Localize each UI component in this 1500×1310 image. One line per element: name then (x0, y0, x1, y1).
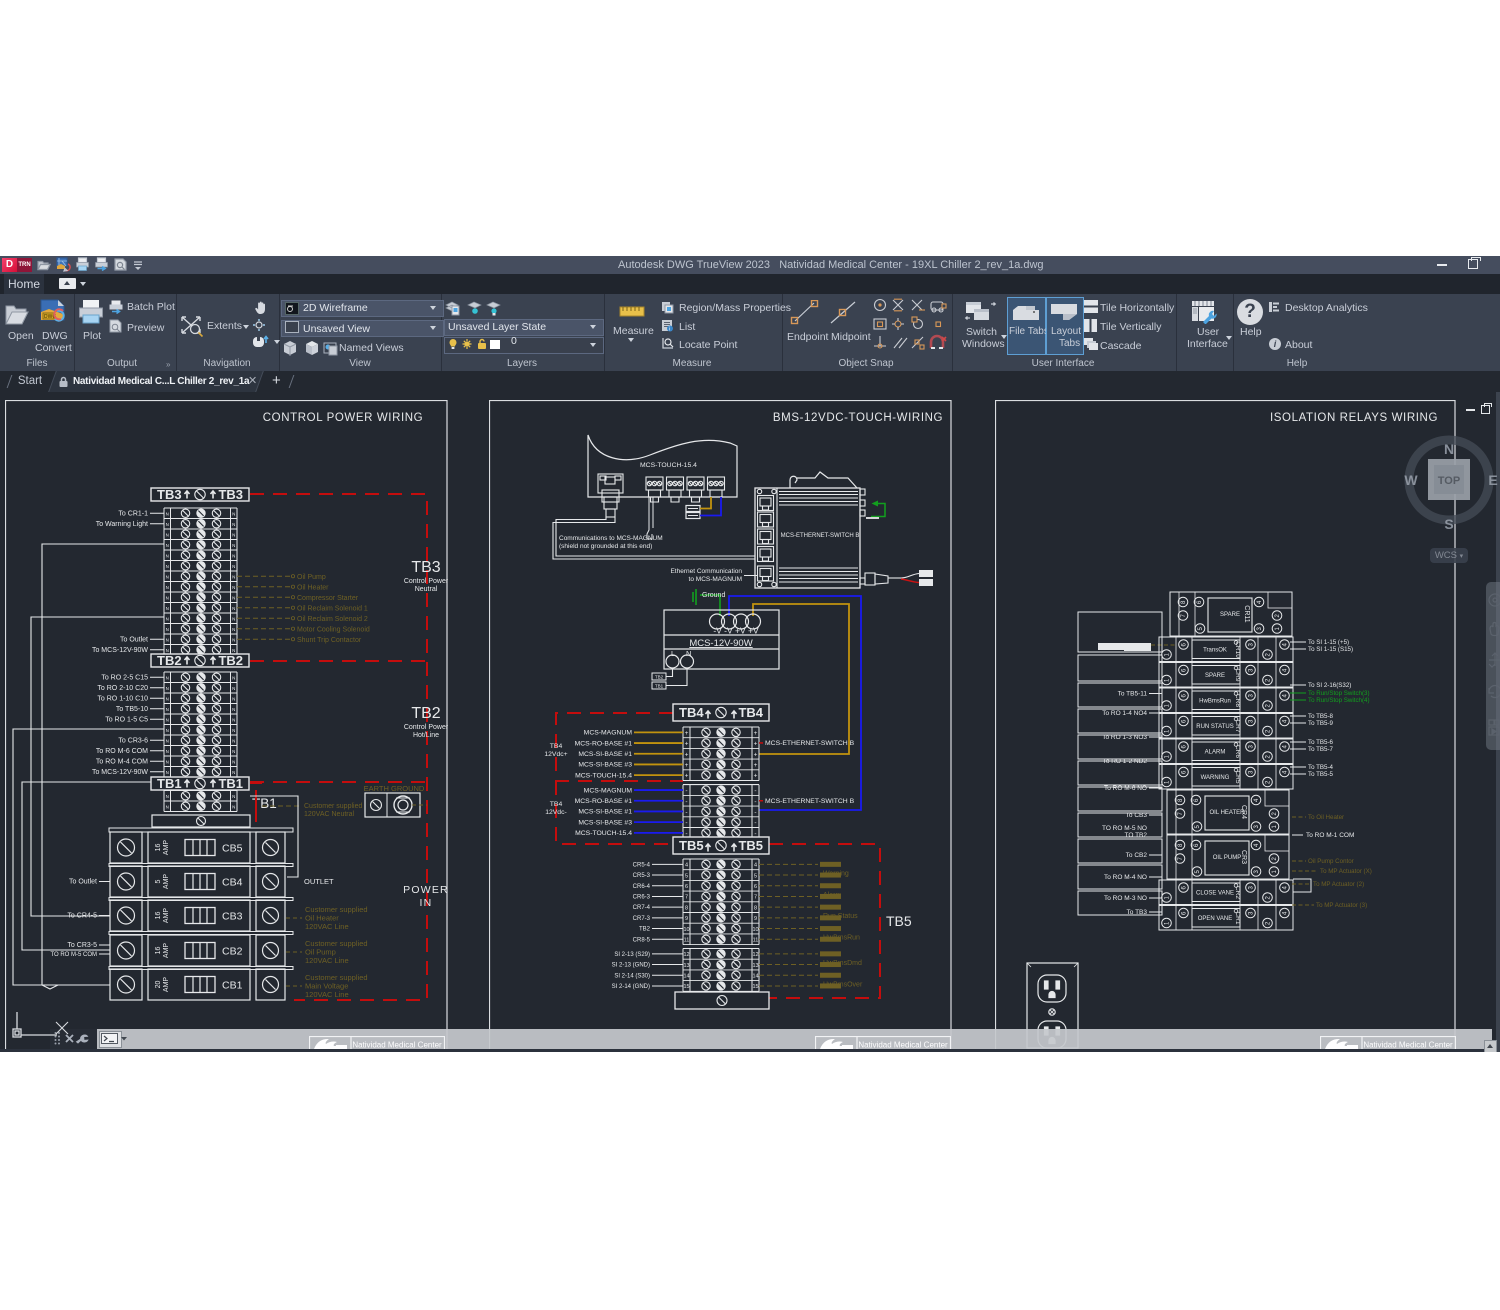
svg-text:-: - (754, 809, 756, 816)
svg-text:7: 7 (1178, 811, 1184, 815)
svg-text:4: 4 (1283, 719, 1289, 723)
svg-text:5: 5 (685, 873, 688, 879)
svg-text:TB1: TB1 (218, 776, 243, 791)
svg-text:N: N (232, 564, 235, 569)
svg-text:2: 2 (1266, 895, 1272, 899)
svg-text:6: 6 (1182, 885, 1188, 889)
svg-text:N: N (166, 522, 169, 527)
svg-text:6: 6 (1182, 642, 1188, 646)
svg-text:-V -V +V +V: -V -V +V +V (713, 626, 759, 636)
svg-text:8: 8 (685, 905, 688, 911)
svg-text:CR9: CR9 (1234, 668, 1241, 681)
svg-text:To RO 1-5 C5: To RO 1-5 C5 (105, 716, 148, 723)
svg-text:To SI 2-16(S32): To SI 2-16(S32) (1308, 682, 1351, 689)
svg-text:N: N (166, 627, 169, 632)
svg-text:4: 4 (754, 863, 757, 869)
svg-text:3: 3 (1257, 626, 1263, 630)
svg-text:N: N (232, 686, 235, 691)
svg-text:Motor Cooling Solenoid: Motor Cooling Solenoid (297, 626, 370, 633)
svg-text:N: N (232, 595, 235, 600)
svg-text:CB5: CB5 (222, 843, 243, 855)
svg-text:N: N (232, 770, 235, 775)
svg-text:Compressor Starter: Compressor Starter (297, 595, 359, 602)
svg-text:8: 8 (1181, 600, 1187, 604)
svg-text:3: 3 (1249, 693, 1255, 697)
svg-text:N: N (166, 749, 169, 754)
svg-text:3: 3 (1254, 869, 1260, 873)
svg-text:OIL HEATER: OIL HEATER (1209, 810, 1245, 816)
svg-text:6: 6 (1182, 770, 1188, 774)
svg-text:Control Power: Control Power (404, 724, 448, 731)
svg-text:HwBmsRun: HwBmsRun (1199, 699, 1231, 705)
svg-text:-: - (685, 788, 687, 795)
svg-text:N: N (232, 543, 235, 548)
svg-text:MCS-TOUCH-15.4: MCS-TOUCH-15.4 (640, 462, 697, 469)
svg-text:To TB5-4: To TB5-4 (1308, 764, 1334, 771)
svg-text:1: 1 (1165, 921, 1171, 925)
svg-text:N: N (232, 585, 235, 590)
svg-text:CB3: CB3 (222, 911, 243, 923)
svg-text:5: 5 (1195, 824, 1201, 828)
svg-text:12: 12 (683, 952, 689, 958)
svg-text:TO RO M-5 COM: TO RO M-5 COM (50, 952, 97, 958)
svg-text:N: N (166, 585, 169, 590)
svg-text:N: N (166, 770, 169, 775)
svg-text:To Warning Light: To Warning Light (96, 521, 148, 528)
svg-text:AMP: AMP (163, 908, 170, 924)
svg-text:OUTLET: OUTLET (304, 877, 334, 886)
svg-text:To RO M-6 NO: To RO M-6 NO (1104, 785, 1147, 792)
svg-text:N: N (232, 759, 235, 764)
svg-text:N: N (166, 574, 169, 579)
svg-text:+: + (685, 751, 689, 758)
svg-text:Ground: Ground (702, 592, 725, 599)
svg-text:TB4: TB4 (738, 705, 763, 720)
svg-text:To RO M-3 NO: To RO M-3 NO (1104, 895, 1147, 902)
svg-text:To TB3: To TB3 (1127, 909, 1148, 916)
svg-text:TransOK: TransOK (1203, 648, 1227, 654)
svg-text:SPARE: SPARE (1205, 673, 1225, 679)
svg-text:MCS-12V-90W: MCS-12V-90W (689, 638, 752, 649)
svg-text:To CB2: To CB2 (1126, 852, 1148, 859)
svg-text:MCS-ETHERNET-SWITCH B: MCS-ETHERNET-SWITCH B (765, 740, 855, 747)
svg-text:9: 9 (685, 916, 688, 922)
svg-text:TB4: TB4 (550, 743, 563, 750)
svg-text:N: N (232, 532, 235, 537)
svg-text:1: 1 (1165, 754, 1171, 758)
svg-text:N: N (232, 717, 235, 722)
svg-text:CR5-3: CR5-3 (633, 873, 651, 879)
svg-text:OIL PUMP: OIL PUMP (1213, 855, 1241, 861)
svg-text:To MCS-12V-90W: To MCS-12V-90W (92, 769, 148, 776)
svg-text:MCS-ETHERNET-SWITCH B: MCS-ETHERNET-SWITCH B (781, 533, 860, 539)
svg-text:13: 13 (752, 963, 758, 969)
svg-text:To Run/Stop Switch(3): To Run/Stop Switch(3) (1308, 690, 1370, 697)
svg-text:Oil Reclaim Solenoid 1: Oil Reclaim Solenoid 1 (297, 605, 368, 612)
svg-text:7: 7 (685, 895, 688, 901)
svg-text:AMP: AMP (163, 874, 170, 890)
svg-text:MCS-SI-BASE #3: MCS-SI-BASE #3 (578, 819, 632, 826)
svg-text:TB5: TB5 (738, 838, 763, 853)
svg-text:TB3: TB3 (218, 487, 243, 502)
svg-text:5: 5 (155, 879, 162, 883)
svg-text:1: 1 (1165, 652, 1171, 656)
svg-text:To MP Actuator (2): To MP Actuator (2) (1313, 881, 1364, 888)
svg-text:N: N (166, 616, 169, 621)
svg-text:+: + (685, 730, 689, 737)
svg-text:CR8: CR8 (1234, 694, 1241, 707)
svg-text:3: 3 (1254, 824, 1260, 828)
svg-text:N: N (166, 543, 169, 548)
svg-text:+: + (685, 773, 689, 780)
svg-text:+: + (754, 741, 758, 748)
svg-text:N: N (232, 522, 235, 527)
svg-text:4: 4 (1283, 668, 1289, 672)
svg-text:Neutral: Neutral (415, 586, 438, 593)
svg-text:-: - (685, 798, 687, 805)
svg-text:-: - (754, 830, 756, 837)
svg-text:TO RO M-5 NO: TO RO M-5 NO (1102, 825, 1147, 832)
svg-text:MCS-MAGNUM: MCS-MAGNUM (584, 730, 633, 737)
svg-text:To TB5-7: To TB5-7 (1308, 746, 1334, 753)
svg-text:MCS-RO-BASE #1: MCS-RO-BASE #1 (575, 798, 633, 805)
svg-text:1: 1 (1165, 895, 1171, 899)
svg-text:TB4: TB4 (550, 801, 563, 808)
svg-text:1: 1 (1165, 703, 1171, 707)
svg-text:To CR3-5: To CR3-5 (67, 942, 97, 949)
svg-text:AMP: AMP (163, 943, 170, 959)
svg-text:6: 6 (685, 884, 688, 890)
svg-text:N: N (1444, 441, 1454, 457)
svg-text:TB5: TB5 (679, 838, 704, 853)
svg-text:TB1: TB1 (157, 776, 182, 791)
svg-text:15: 15 (683, 984, 689, 990)
svg-text:W: W (1404, 472, 1418, 488)
svg-text:N: N (166, 759, 169, 764)
svg-text:4: 4 (1254, 843, 1260, 847)
svg-text:6: 6 (1194, 843, 1200, 847)
svg-text:N: N (166, 675, 169, 680)
svg-text:CR5: CR5 (1234, 770, 1241, 783)
svg-text:CB2: CB2 (222, 946, 243, 958)
svg-text:MCS-TOUCH-15.4: MCS-TOUCH-15.4 (575, 772, 632, 779)
svg-text:MCS-ETHERNET-SWITCH B: MCS-ETHERNET-SWITCH B (765, 798, 855, 805)
svg-text:To SI 1-15 (+5): To SI 1-15 (+5) (1308, 639, 1349, 646)
svg-text:N: N (166, 511, 169, 516)
svg-text:To TB5-11: To TB5-11 (1118, 691, 1148, 698)
svg-text:SI 2-13 (S29): SI 2-13 (S29) (614, 952, 650, 958)
svg-text:CR7-3: CR7-3 (633, 916, 651, 922)
svg-text:Shunt Trip Contactor: Shunt Trip Contactor (297, 637, 362, 644)
svg-text:CR6: CR6 (1234, 745, 1241, 758)
svg-text:To Run/Stop Switch(4): To Run/Stop Switch(4) (1308, 697, 1370, 704)
svg-text:12: 12 (752, 952, 758, 958)
svg-text:To Oil Heater: To Oil Heater (1308, 814, 1344, 821)
svg-text:AMP: AMP (163, 840, 170, 856)
svg-text:MCS-MAGNUM: MCS-MAGNUM (584, 787, 633, 794)
svg-text:-: - (754, 798, 756, 805)
svg-text:6: 6 (1182, 719, 1188, 723)
svg-text:L: L (671, 649, 675, 658)
svg-text:8: 8 (1178, 843, 1184, 847)
svg-text:Oil Pump: Oil Pump (297, 574, 326, 581)
svg-text:CR1: CR1 (1234, 911, 1241, 924)
svg-text:To RO M-4 NO: To RO M-4 NO (1104, 874, 1147, 881)
svg-text:+: + (754, 730, 758, 737)
svg-text:POWER: POWER (403, 884, 448, 896)
svg-text:To CB3: To CB3 (1126, 812, 1148, 819)
svg-text:16: 16 (155, 912, 162, 920)
svg-text:To TB5-5: To TB5-5 (1308, 771, 1334, 778)
svg-text:3: 3 (1249, 885, 1255, 889)
svg-text:TB1: TB1 (655, 684, 664, 689)
svg-text:To TB5-6: To TB5-6 (1308, 739, 1334, 746)
svg-text:20: 20 (155, 981, 162, 989)
svg-text:MCS-SI-BASE #3: MCS-SI-BASE #3 (578, 762, 632, 769)
svg-text:6: 6 (1194, 798, 1200, 802)
svg-text:To RO 2-5 C15: To RO 2-5 C15 (101, 674, 148, 681)
svg-text:N: N (232, 738, 235, 743)
svg-text:2: 2 (1272, 856, 1278, 860)
svg-text:16: 16 (155, 947, 162, 955)
svg-text:OPEN VANE: OPEN VANE (1198, 916, 1233, 922)
svg-text:16: 16 (155, 844, 162, 852)
svg-text:To Outlet: To Outlet (69, 879, 97, 886)
svg-text:To TB5-9: To TB5-9 (1308, 720, 1334, 727)
svg-text:CR11: CR11 (1243, 605, 1250, 622)
svg-text:TOP: TOP (1438, 475, 1460, 487)
svg-text:MCS-SI-BASE #1: MCS-SI-BASE #1 (578, 751, 632, 758)
svg-text:5: 5 (1198, 626, 1204, 630)
svg-text:1: 1 (1272, 869, 1278, 873)
svg-text:MCS-SI-BASE #1: MCS-SI-BASE #1 (578, 809, 632, 816)
svg-text:Hot/Line: Hot/Line (413, 732, 439, 739)
svg-text:N: N (166, 804, 169, 809)
svg-text:To Outlet: To Outlet (120, 636, 148, 643)
svg-text:1: 1 (1165, 780, 1171, 784)
svg-text:7: 7 (1178, 856, 1184, 860)
svg-text:4: 4 (1257, 600, 1263, 604)
svg-text:2: 2 (1275, 613, 1281, 617)
svg-text:N: N (166, 686, 169, 691)
svg-text:TB2: TB2 (655, 675, 664, 680)
svg-text:6: 6 (1182, 668, 1188, 672)
svg-text:6: 6 (754, 884, 757, 890)
svg-text:IN: IN (420, 897, 433, 909)
svg-text:11: 11 (684, 937, 690, 943)
svg-text:2: 2 (1266, 729, 1272, 733)
svg-text:11: 11 (753, 937, 759, 943)
svg-text:CR3: CR3 (1240, 850, 1247, 864)
svg-text:N: N (232, 675, 235, 680)
svg-text:1: 1 (1275, 626, 1281, 630)
svg-text:AMP: AMP (163, 977, 170, 993)
svg-text:1: 1 (1165, 729, 1171, 733)
svg-text:CR5-4: CR5-4 (633, 862, 651, 868)
svg-text:9: 9 (754, 916, 757, 922)
svg-text:N: N (166, 595, 169, 600)
svg-text:N: N (166, 738, 169, 743)
svg-text:Oil Pump Contor: Oil Pump Contor (1308, 858, 1354, 865)
svg-text:2: 2 (1266, 754, 1272, 758)
svg-text:CB1: CB1 (222, 980, 243, 992)
svg-text:3: 3 (1249, 642, 1255, 646)
svg-text:N: N (232, 574, 235, 579)
svg-text:6: 6 (1182, 911, 1188, 915)
svg-text:CR7: CR7 (1234, 719, 1241, 732)
svg-text:4: 4 (685, 863, 688, 869)
svg-text:TB2: TB2 (639, 927, 651, 933)
svg-text:TB5: TB5 (886, 913, 912, 929)
svg-text:MCS-TOUCH-15.4: MCS-TOUCH-15.4 (575, 830, 632, 837)
svg-text:Oil Heater: Oil Heater (297, 584, 329, 591)
svg-text:N: N (166, 707, 169, 712)
svg-text:SI 2-13 (GND): SI 2-13 (GND) (612, 963, 650, 969)
svg-text:3: 3 (1249, 668, 1255, 672)
svg-text:To RO M-1 COM: To RO M-1 COM (1306, 832, 1354, 839)
svg-text:6: 6 (1197, 600, 1203, 604)
svg-text:E: E (1488, 472, 1497, 488)
svg-text:-: - (754, 820, 756, 827)
svg-text:TB3: TB3 (411, 559, 440, 576)
svg-text:+: + (754, 773, 758, 780)
svg-text:4: 4 (1283, 744, 1289, 748)
svg-text:N: N (232, 728, 235, 733)
svg-text:2: 2 (1266, 678, 1272, 682)
svg-text:4: 4 (1283, 770, 1289, 774)
svg-text:CONTROL POWER WIRING: CONTROL POWER WIRING (263, 412, 423, 424)
svg-text:To TB5-8: To TB5-8 (1308, 713, 1334, 720)
svg-text:120VAC Line: 120VAC Line (305, 922, 349, 931)
svg-text:CR4: CR4 (1240, 805, 1247, 819)
svg-text:120VAC Line: 120VAC Line (305, 990, 349, 999)
svg-text:To SI 1-15 (S15): To SI 1-15 (S15) (1308, 646, 1353, 653)
svg-text:-: - (754, 788, 756, 795)
svg-text:ALARM: ALARM (1205, 750, 1226, 756)
svg-text:N: N (232, 627, 235, 632)
svg-text:To RO 1-4 NO4: To RO 1-4 NO4 (1102, 710, 1147, 717)
svg-text:15: 15 (752, 984, 758, 990)
svg-text:Oil Reclaim Solenoid 2: Oil Reclaim Solenoid 2 (297, 616, 368, 623)
svg-text:EARTH GROUND: EARTH GROUND (364, 784, 425, 793)
svg-text:N: N (166, 606, 169, 611)
svg-text:N: N (232, 511, 235, 516)
svg-text:N: N (232, 794, 235, 799)
svg-text:10: 10 (752, 927, 758, 933)
svg-text:N: N (166, 564, 169, 569)
svg-text:WARNING: WARNING (1201, 775, 1230, 781)
svg-text:N: N (232, 606, 235, 611)
svg-text:N: N (166, 648, 169, 653)
svg-text:To CR4-5: To CR4-5 (67, 913, 97, 920)
svg-text:N: N (232, 616, 235, 621)
svg-text:CR6-4: CR6-4 (633, 884, 651, 890)
svg-text:i: i (669, 327, 670, 333)
svg-text:4: 4 (1283, 642, 1289, 646)
svg-text:Control Power: Control Power (404, 578, 448, 585)
svg-text:2: 2 (1272, 811, 1278, 815)
svg-text:12Vdc+: 12Vdc+ (544, 751, 567, 758)
svg-text:To MCS-12V-90W: To MCS-12V-90W (92, 647, 148, 654)
svg-text:SI 2-14 (S30): SI 2-14 (S30) (614, 973, 650, 979)
svg-text:To CR3-6: To CR3-6 (118, 737, 148, 744)
svg-text:3: 3 (1249, 719, 1255, 723)
svg-text:To RO M-6 COM: To RO M-6 COM (96, 748, 148, 755)
svg-text:CR6-3: CR6-3 (633, 894, 651, 900)
svg-text:CLOSE VANE: CLOSE VANE (1196, 891, 1234, 897)
svg-text:10: 10 (683, 927, 689, 933)
svg-text:N: N (686, 649, 691, 658)
svg-text:+: + (685, 741, 689, 748)
svg-text:CB4: CB4 (222, 877, 243, 889)
svg-text:TO TB2: TO TB2 (1124, 832, 1147, 839)
svg-text:CR8-5: CR8-5 (633, 937, 651, 943)
svg-text:6: 6 (1182, 693, 1188, 697)
svg-text:N: N (232, 553, 235, 558)
svg-text:TB2: TB2 (411, 705, 440, 722)
svg-text:8: 8 (1178, 798, 1184, 802)
svg-text:4: 4 (1283, 885, 1289, 889)
svg-text:(shield not grounded at this e: (shield not grounded at this end) (559, 543, 652, 550)
svg-text:To RO 1-10 C10: To RO 1-10 C10 (97, 695, 148, 702)
svg-text:To RO 1-2 ND2: To RO 1-2 ND2 (1103, 758, 1148, 765)
svg-text:To MP Actuator (3): To MP Actuator (3) (1316, 902, 1367, 909)
svg-text:4: 4 (1254, 798, 1260, 802)
svg-text:N: N (232, 749, 235, 754)
svg-text:-: - (685, 830, 687, 837)
svg-text:N: N (166, 532, 169, 537)
svg-text:CR7-4: CR7-4 (633, 905, 651, 911)
svg-text:Ethernet Communication: Ethernet Communication (670, 568, 742, 575)
svg-text:To MP Actuator (X): To MP Actuator (X) (1320, 868, 1372, 875)
svg-text:2: 2 (1266, 780, 1272, 784)
svg-text:-: - (685, 809, 687, 816)
svg-text:2: 2 (1266, 921, 1272, 925)
svg-text:N: N (166, 637, 169, 642)
svg-text:To RO M-4 COM: To RO M-4 COM (96, 758, 148, 765)
svg-text:6: 6 (1182, 744, 1188, 748)
svg-text:1: 1 (1165, 678, 1171, 682)
svg-text:-: - (685, 820, 687, 827)
svg-text:14: 14 (683, 973, 689, 979)
svg-text:RUN STATUS: RUN STATUS (1196, 724, 1233, 730)
svg-text:MCS-RO-BASE #1: MCS-RO-BASE #1 (575, 740, 633, 747)
svg-text:+: + (685, 762, 689, 769)
svg-text:120VAC Neutral: 120VAC Neutral (304, 811, 355, 818)
svg-text:Customer supplied: Customer supplied (304, 803, 362, 810)
svg-text:+: + (754, 762, 758, 769)
svg-text:S: S (1444, 516, 1453, 532)
svg-text:N: N (166, 717, 169, 722)
svg-text:N: N (232, 696, 235, 701)
svg-text:N: N (166, 728, 169, 733)
svg-text:5: 5 (754, 873, 757, 879)
svg-text:12Vdc-: 12Vdc- (545, 809, 567, 816)
svg-text:3: 3 (1249, 770, 1255, 774)
svg-text:2: 2 (1266, 652, 1272, 656)
svg-text:To RO 2-10 C20: To RO 2-10 C20 (97, 685, 148, 692)
svg-text:4: 4 (1283, 693, 1289, 697)
svg-text:TB2: TB2 (218, 653, 243, 668)
svg-text:CR2: CR2 (1234, 886, 1241, 899)
svg-text:To RO 1-3 NO3: To RO 1-3 NO3 (1102, 734, 1147, 741)
svg-text:TB3: TB3 (157, 487, 182, 502)
svg-text:13: 13 (683, 963, 689, 969)
svg-text:7: 7 (754, 895, 757, 901)
svg-text:4: 4 (1283, 911, 1289, 915)
svg-text:N: N (232, 707, 235, 712)
svg-text:N: N (232, 637, 235, 642)
